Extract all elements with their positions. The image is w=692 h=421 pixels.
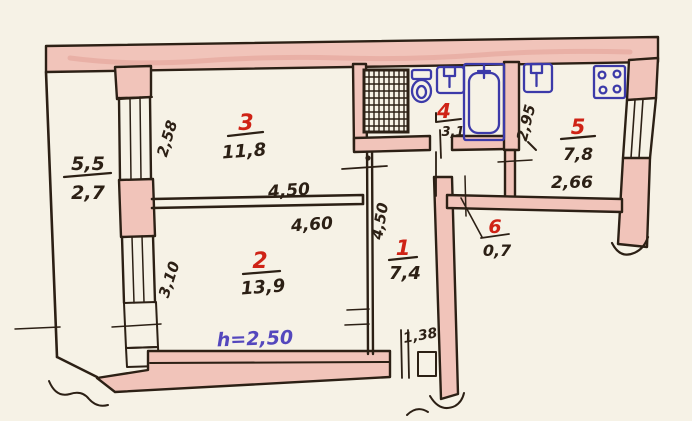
room4-area: 3,1 — [441, 125, 464, 140]
room5-area: 7,8 — [563, 145, 593, 165]
door-hinge-dot — [365, 155, 370, 160]
kitchen-wall-lower — [505, 150, 515, 197]
balcony-area-label: 5,5 — [71, 153, 105, 175]
wall-inner-edge — [150, 362, 390, 363]
right-wall-pier-top — [627, 58, 658, 100]
floor-plan-drawing: 5,5 2,7 3 11,8 2 13,9 1 7,4 4 3,1 5 7,8 … — [0, 0, 692, 421]
room1-number: 1 — [396, 236, 411, 260]
kitchen-bottom-wall — [447, 195, 622, 212]
room5-number: 5 — [571, 115, 586, 139]
room4-number: 4 — [436, 99, 451, 123]
room3-area: 11,8 — [221, 139, 267, 163]
room2-width-dim: 4,60 — [289, 214, 333, 237]
room1-area: 7,4 — [389, 263, 421, 284]
dimension-tick — [465, 176, 466, 216]
kitchen-width-dim: 2,66 — [551, 173, 593, 193]
balcony-lower-label: 2,7 — [71, 182, 105, 204]
room2-area: 13,9 — [240, 275, 286, 299]
room6-area: 0,7 — [483, 241, 512, 260]
ventilation-shaft-icon — [364, 70, 408, 132]
room3-width-dim: 4,50 — [266, 180, 310, 203]
pier — [119, 179, 155, 237]
ceiling-height-note: h=2,50 — [216, 327, 293, 352]
floor-plan-sheet: 5,5 2,7 3 11,8 2 13,9 1 7,4 4 3,1 5 7,8 … — [0, 0, 692, 421]
pier — [115, 66, 151, 99]
room2-number: 2 — [252, 249, 267, 274]
bathroom-bottom-wall — [354, 136, 430, 152]
